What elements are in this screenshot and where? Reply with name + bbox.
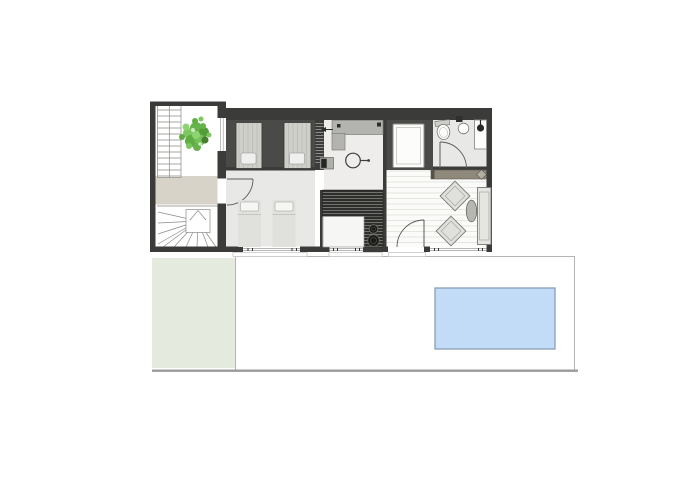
pillow [241,202,259,211]
shower-room [393,124,424,168]
interior-window [218,118,227,151]
shower-corner [475,120,487,149]
wall-vanity-right [383,120,387,247]
upper-bedroom [236,121,334,169]
stairwell [155,105,219,248]
pillow [275,202,293,211]
coffee-table [466,200,476,222]
lawn [152,258,235,368]
wall-stair-left [150,102,156,253]
sideboard [431,170,487,180]
pool [435,288,555,349]
floor-plan-page [0,0,700,500]
kitchen-counter [323,190,384,217]
sofa [478,188,492,245]
pillow [241,153,256,164]
wall-kitchen-left [320,190,323,247]
entry-door-opening [388,247,424,253]
kitchen [323,190,384,247]
window-bay-living [430,247,487,253]
cistern [456,116,463,122]
cooktop-burner [368,235,380,247]
window-bay-bedroom [243,247,300,253]
landing-door-opening [218,179,227,204]
faucet [337,124,341,128]
bed [273,200,296,247]
shower-head-icon [477,124,484,131]
kitchen-island [323,217,364,248]
washbasin [458,123,469,134]
floor-plan-drawing [0,0,700,500]
stair-landing [156,176,219,205]
wall-stair-top [150,102,222,107]
cooktop-burner [369,225,378,234]
bed [284,123,311,169]
bed [236,123,262,169]
washbasin-unit [320,158,334,170]
faucet [377,123,381,127]
vanity-counter-return [332,134,345,151]
pillow [290,153,305,164]
bed [238,200,261,247]
straight-staircase [158,105,182,178]
property-ground-line [152,370,578,372]
wall-main-top [222,108,492,120]
shower-tray [393,124,424,168]
exterior-area [152,253,578,372]
door-thresholds [233,253,426,257]
